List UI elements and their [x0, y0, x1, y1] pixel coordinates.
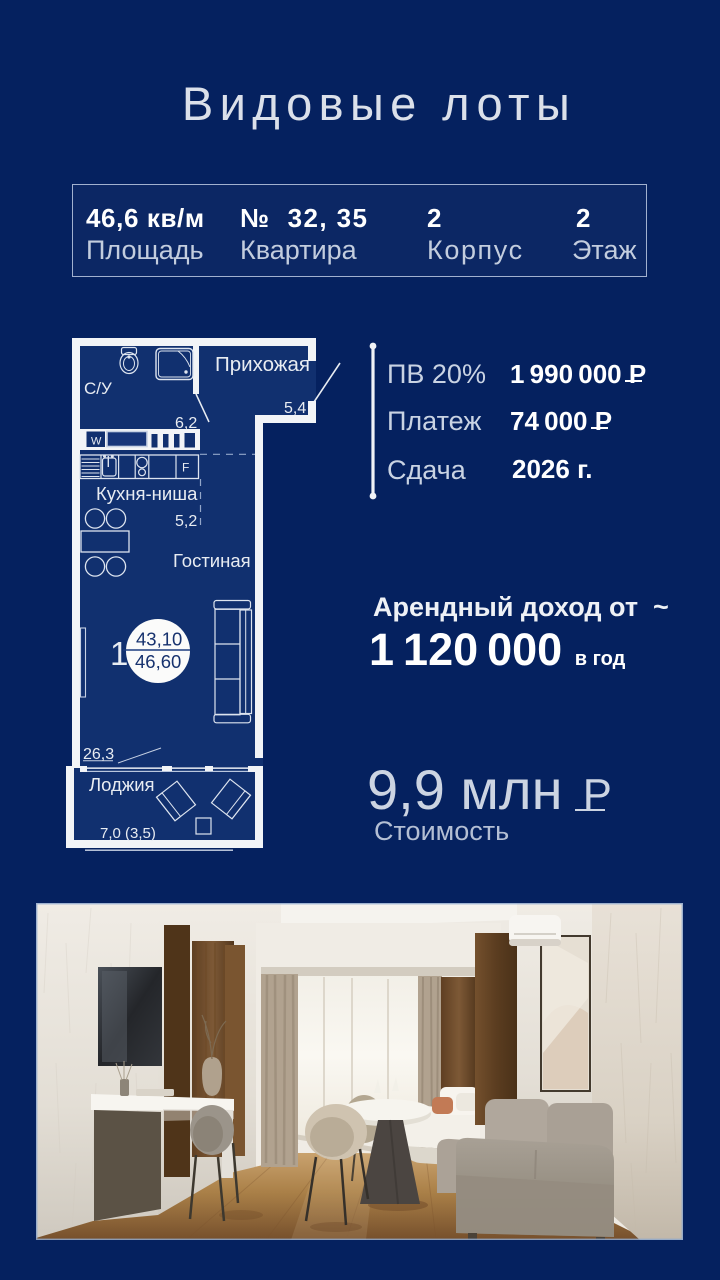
- svg-text:46,60: 46,60: [135, 651, 181, 672]
- svg-text:5,2: 5,2: [175, 513, 197, 530]
- svg-text:W: W: [91, 436, 102, 448]
- svg-text:5,4: 5,4: [284, 400, 306, 417]
- svg-text:Кухня-ниша: Кухня-ниша: [96, 483, 198, 504]
- svg-text:Гостиная: Гостиная: [173, 550, 251, 571]
- svg-text:С/У: С/У: [84, 379, 112, 398]
- svg-text:Прихожая: Прихожая: [215, 353, 310, 376]
- svg-text:Лоджия: Лоджия: [89, 774, 155, 795]
- svg-text:F: F: [182, 461, 189, 475]
- svg-text:1: 1: [110, 635, 128, 672]
- svg-text:6,2: 6,2: [175, 415, 197, 432]
- svg-text:26,3: 26,3: [83, 746, 114, 763]
- svg-text:7,0 (3,5): 7,0 (3,5): [100, 825, 156, 842]
- svg-text:43,10: 43,10: [136, 629, 182, 650]
